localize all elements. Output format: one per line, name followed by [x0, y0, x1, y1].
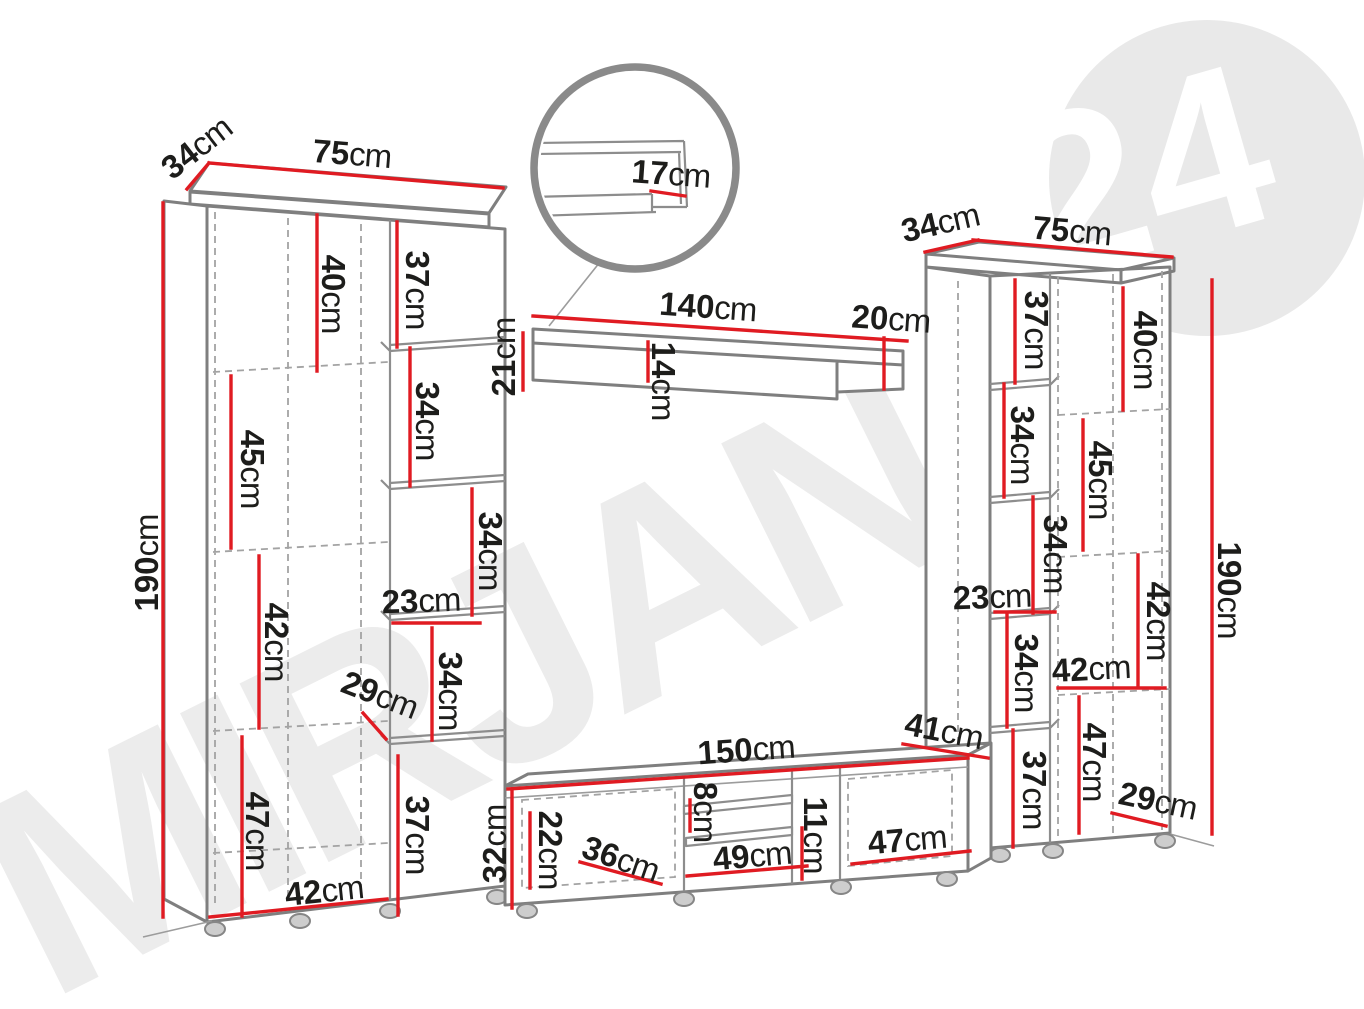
- dim-right-col-34c: 34cm: [1009, 634, 1046, 713]
- cabinet-foot: [990, 848, 1010, 862]
- dim-right-47: 47cm: [1077, 723, 1114, 802]
- dim-value: 22: [533, 811, 570, 848]
- dim-unit: cm: [533, 847, 570, 889]
- dim-value: 23: [381, 582, 419, 620]
- dim-unit: cm: [1141, 618, 1178, 660]
- dim-value: 32: [476, 847, 513, 884]
- dim-unit: cm: [751, 727, 795, 767]
- dim-tv-49: 49cm: [711, 833, 793, 877]
- dim-value: 8: [688, 782, 725, 800]
- dim-value: 42: [259, 603, 296, 640]
- dim-value: 40: [316, 255, 353, 292]
- dim-unit: cm: [1017, 787, 1054, 829]
- dim-unit: cm: [1038, 551, 1075, 593]
- dim-unit: cm: [433, 688, 470, 730]
- dim-unit: cm: [235, 466, 272, 508]
- dim-right-width: 75cm: [1031, 208, 1113, 252]
- dim-shelf-140: 140cm: [658, 284, 757, 328]
- dim-unit: cm: [887, 299, 931, 339]
- dim-right-col-37b: 37cm: [1017, 751, 1054, 830]
- dim-unit: cm: [410, 418, 447, 460]
- cabinet-foot: [674, 892, 694, 906]
- dim-unit: cm: [713, 288, 757, 328]
- dim-value: 45: [235, 430, 272, 467]
- dim-tv-32: 32cm: [476, 805, 513, 884]
- dim-unit: cm: [1068, 211, 1113, 252]
- dim-value: 47: [1077, 723, 1114, 760]
- dim-right-42v: 42cm: [1141, 582, 1178, 661]
- dim-left-45: 45cm: [235, 430, 272, 509]
- dim-unit: cm: [1212, 597, 1249, 639]
- dim-right-40: 40cm: [1128, 311, 1165, 390]
- dim-unit: cm: [688, 800, 725, 842]
- dim-value: 42: [1141, 582, 1178, 619]
- dim-unit: cm: [798, 831, 835, 873]
- dim-unit: cm: [400, 832, 437, 874]
- dim-right-height: 190cm: [1212, 541, 1249, 638]
- cabinet-foot: [1043, 844, 1063, 858]
- dim-unit: cm: [1005, 442, 1042, 484]
- dim-detail-17: 17cm: [630, 152, 711, 194]
- dim-value: 34: [1009, 634, 1046, 671]
- dim-tv-150: 150cm: [696, 727, 795, 771]
- dim-left-col-37b: 37cm: [400, 796, 437, 875]
- dim-left-47: 47cm: [240, 792, 277, 871]
- dim-left-42: 42cm: [259, 603, 296, 682]
- dim-value: 49: [711, 837, 751, 877]
- dim-unit: cm: [1009, 670, 1046, 712]
- dim-unit: cm: [400, 287, 437, 329]
- dim-unit: cm: [1077, 759, 1114, 801]
- dim-value: 14: [646, 342, 683, 379]
- dim-value: 40: [1128, 311, 1165, 348]
- dim-left-width: 75cm: [311, 131, 392, 174]
- dim-tv-11: 11cm: [798, 797, 835, 874]
- dim-unit: cm: [240, 828, 277, 870]
- dim-unit: cm: [989, 576, 1032, 614]
- dim-value: 34: [1005, 406, 1042, 443]
- dim-left-40: 40cm: [316, 255, 353, 334]
- dim-shelf-21: 21cm: [485, 318, 522, 397]
- dim-tv-8: 8cm: [688, 782, 725, 842]
- dim-unit: cm: [473, 548, 510, 590]
- dim-value: 190: [128, 556, 165, 611]
- dim-tv-47: 47cm: [866, 817, 948, 861]
- dim-unit: cm: [667, 154, 711, 194]
- dim-value: 150: [696, 730, 754, 771]
- dim-left-col-34c: 34cm: [433, 652, 470, 731]
- cabinet-foot: [831, 880, 851, 894]
- dim-left-col-34b: 34cm: [473, 512, 510, 591]
- cabinet-foot: [205, 922, 225, 936]
- dim-value: 21: [485, 360, 522, 397]
- dim-unit: cm: [485, 318, 522, 360]
- dim-value: 20: [850, 297, 889, 336]
- dim-value: 23: [952, 578, 990, 616]
- dim-value: 37: [1019, 291, 1056, 328]
- dim-value: 42: [283, 872, 323, 913]
- dim-unit: cm: [418, 580, 461, 618]
- dim-value: 47: [866, 821, 906, 861]
- dim-left-height: 190cm: [128, 514, 165, 611]
- dim-value: 37: [1017, 751, 1054, 788]
- dim-right-col-37a: 37cm: [1019, 291, 1056, 370]
- cabinet-foot: [1155, 834, 1175, 848]
- dim-unit: cm: [938, 711, 986, 755]
- dim-unit: cm: [1083, 477, 1120, 519]
- dim-value: 75: [311, 131, 351, 171]
- dim-unit: cm: [348, 134, 393, 174]
- dim-unit: cm: [1087, 647, 1131, 686]
- dim-unit: cm: [646, 378, 683, 420]
- dim-value: 37: [400, 796, 437, 833]
- dim-unit: cm: [319, 867, 365, 908]
- dim-left-col-34a: 34cm: [410, 382, 447, 461]
- dim-tv-22: 22cm: [533, 811, 570, 890]
- dim-value: 37: [400, 251, 437, 288]
- diagram-canvas: 24 MIRJAN: [0, 0, 1364, 1009]
- dim-value: 75: [1031, 208, 1071, 248]
- dim-left-col-23: 23cm: [381, 580, 461, 620]
- cabinet-foot: [517, 904, 537, 918]
- dim-shelf-20: 20cm: [850, 297, 931, 339]
- dim-shelf-14: 14cm: [646, 342, 683, 421]
- dim-right-col-23: 23cm: [952, 576, 1032, 616]
- dim-value: 17: [630, 152, 669, 191]
- furniture-dimension-diagram: 24 MIRJAN: [0, 0, 1364, 1009]
- dim-value: 34: [473, 512, 510, 549]
- dim-unit: cm: [748, 833, 793, 874]
- dim-unit: cm: [476, 805, 513, 847]
- dim-left-col-37a: 37cm: [400, 251, 437, 330]
- dim-value: 34: [1038, 515, 1075, 552]
- dim-value: 190: [1212, 541, 1249, 596]
- dim-value: 34: [410, 382, 447, 419]
- dim-unit: cm: [903, 817, 948, 858]
- dim-value: 42: [1051, 650, 1090, 689]
- dim-unit: cm: [1019, 327, 1056, 369]
- dim-unit: cm: [316, 291, 353, 333]
- dim-right-42h: 42cm: [1051, 647, 1132, 688]
- dim-value: 45: [1083, 441, 1120, 478]
- dim-value: 47: [240, 792, 277, 829]
- dim-unit: cm: [128, 514, 165, 556]
- dim-value: 34: [433, 652, 470, 689]
- dim-right-col-34b: 34cm: [1038, 515, 1075, 594]
- dim-right-col-34a: 34cm: [1005, 406, 1042, 485]
- dim-unit: cm: [1128, 347, 1165, 389]
- cabinet-foot: [937, 872, 957, 886]
- dim-unit: cm: [259, 639, 296, 681]
- dim-right-45: 45cm: [1083, 441, 1120, 520]
- cabinet-foot: [290, 914, 310, 928]
- dim-value: 11: [798, 797, 835, 832]
- dim-value: 140: [658, 284, 716, 325]
